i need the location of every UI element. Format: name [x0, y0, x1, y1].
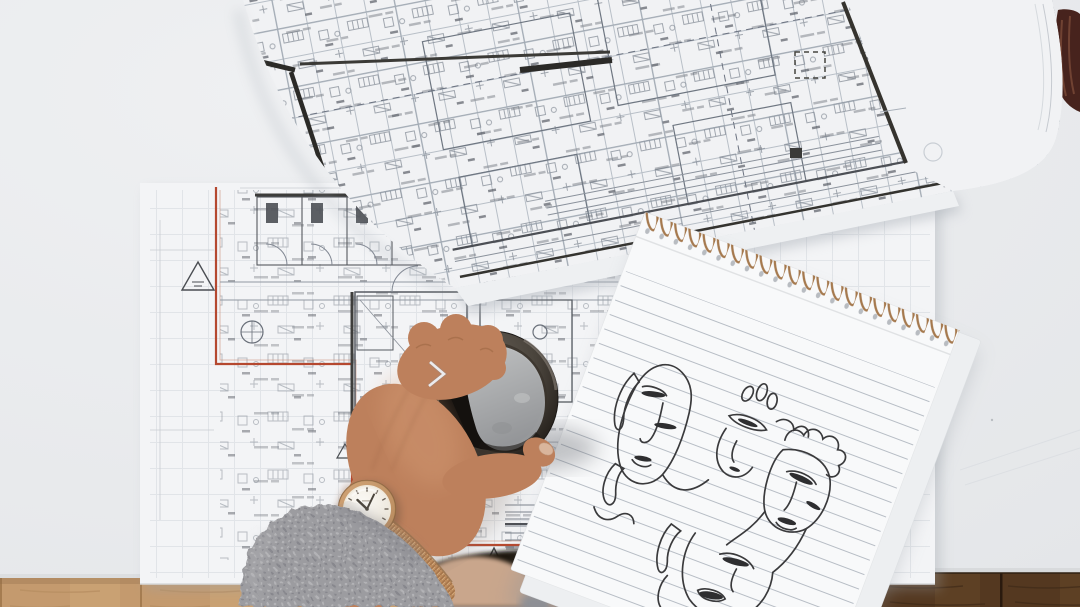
photo-desk-blueprints	[0, 0, 1080, 607]
fingertip	[457, 339, 483, 365]
fingertip	[482, 356, 506, 380]
